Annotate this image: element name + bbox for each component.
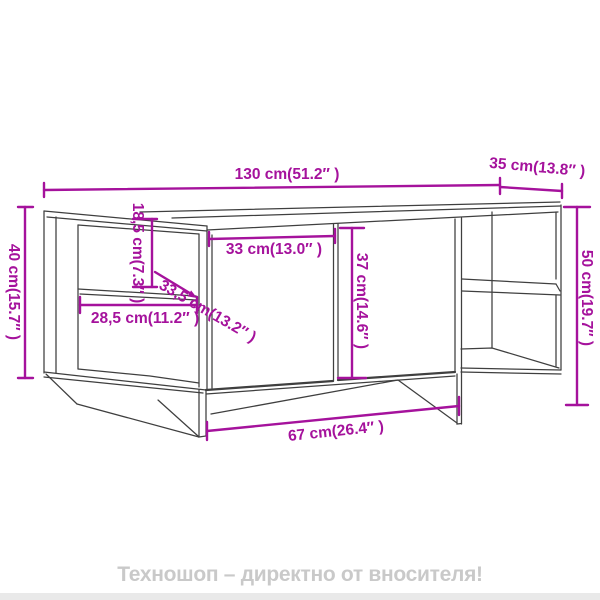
dim-door-height-label: 37 cm(14.6″ ) <box>353 253 370 349</box>
dim-door-width-label: 33 cm(13.0″ ) <box>226 241 322 258</box>
bottom-strip <box>0 593 600 600</box>
right-shelf-side <box>556 284 560 291</box>
left-leg <box>199 390 206 437</box>
base-front-edge <box>206 376 455 394</box>
right-shelf-back-edge <box>462 279 556 284</box>
dim-depth-line <box>500 184 562 198</box>
dim-total-width-label: 130 cm(51.2″ ) <box>235 166 340 183</box>
dim-left-height-label: 40 cm(15.7″ ) <box>5 244 22 340</box>
dimension-labels: 130 cm(51.2″ ) 35 cm(13.8″ ) 40 cm(15.7″… <box>5 155 595 445</box>
right-shelf-front-edge <box>462 291 560 295</box>
right-foot-gusset <box>398 380 457 423</box>
dim-shelf-depth-label: 28,5 cm(11.2″ ) <box>91 310 199 327</box>
right-bottom-edge <box>461 368 561 370</box>
left-foot-gusset <box>158 400 198 436</box>
dimension-lines <box>18 178 590 440</box>
top-front-edge <box>172 206 560 218</box>
door-bottom-left <box>206 381 333 390</box>
floor-back-line <box>211 380 398 414</box>
product-dimension-diagram: 130 cm(51.2″ ) 35 cm(13.8″ ) 40 cm(15.7″… <box>0 0 600 600</box>
dim-right-height-label: 50 cm(19.7″ ) <box>578 250 595 346</box>
footer-watermark-text: Техношоп – директно от вносителя! <box>117 563 482 586</box>
top-back-edge <box>140 202 560 212</box>
left-interior-floor <box>78 369 199 383</box>
dim-upper-compartment-label: 18,5 cm(7.3″ ) <box>129 203 146 303</box>
diagram-canvas: 130 cm(51.2″ ) 35 cm(13.8″ ) 40 cm(15.7″… <box>0 0 600 600</box>
right-bottom-interior <box>461 348 559 368</box>
left-bottom-inner-edge <box>44 377 203 393</box>
dim-depth-label: 35 cm(13.8″ ) <box>489 155 586 180</box>
right-bottom-outer-edge <box>461 372 561 374</box>
footer-watermark: Техношоп – директно от вносителя! <box>0 563 600 587</box>
